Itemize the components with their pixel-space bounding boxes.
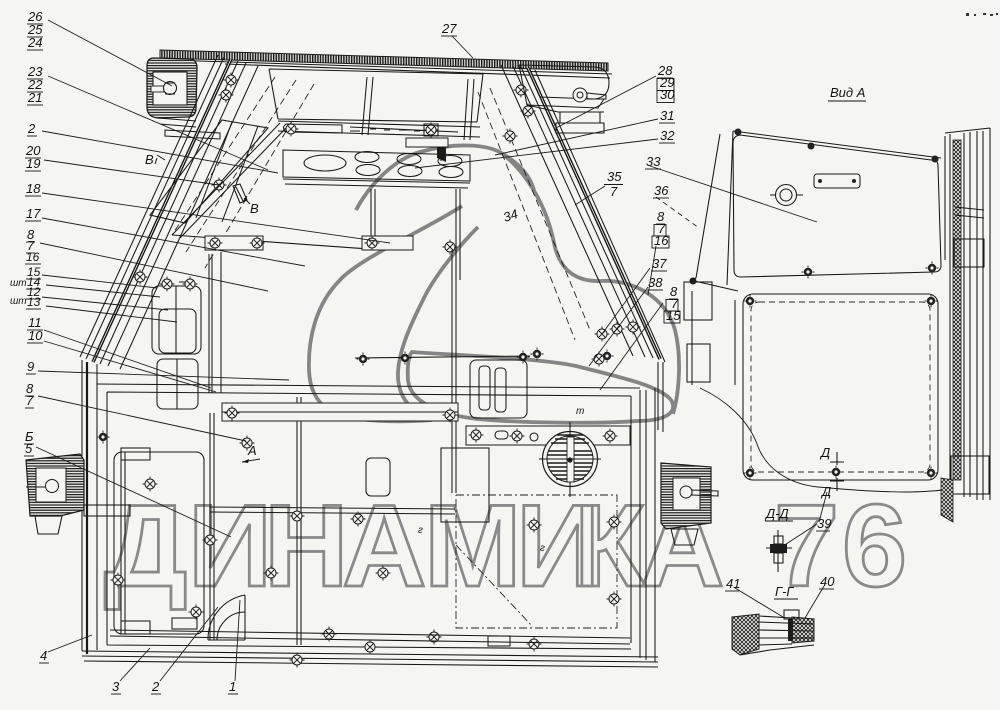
svg-text:К: К: [574, 480, 646, 611]
svg-text:31: 31: [660, 108, 674, 123]
svg-text:40: 40: [820, 574, 835, 589]
svg-text:А: А: [342, 480, 427, 611]
svg-text:13: 13: [27, 295, 41, 309]
svg-text:16: 16: [654, 233, 669, 248]
svg-text:33: 33: [646, 154, 661, 169]
svg-text:7: 7: [26, 393, 34, 408]
svg-text:9: 9: [27, 359, 34, 374]
svg-text:3: 3: [112, 679, 120, 694]
svg-text:32: 32: [660, 128, 675, 143]
svg-text:Д: Д: [820, 484, 831, 499]
svg-text:А: А: [247, 443, 257, 458]
svg-text:В: В: [145, 152, 154, 167]
svg-text:шт: шт: [10, 278, 27, 289]
svg-text:16: 16: [26, 250, 40, 264]
svg-text:39: 39: [817, 516, 831, 531]
svg-text:шт: шт: [10, 296, 27, 307]
svg-text:4: 4: [40, 648, 47, 663]
svg-text:15: 15: [666, 308, 681, 323]
svg-text:38: 38: [648, 275, 663, 290]
svg-text:5: 5: [25, 441, 33, 456]
svg-text:37: 37: [652, 256, 667, 271]
svg-text:17: 17: [26, 206, 41, 221]
svg-text:6: 6: [842, 480, 907, 611]
svg-text:35: 35: [607, 169, 622, 184]
svg-text:М: М: [424, 480, 521, 611]
svg-text:7: 7: [610, 184, 618, 199]
svg-text:30: 30: [660, 87, 675, 102]
svg-text:41: 41: [726, 576, 740, 591]
svg-text:36: 36: [654, 183, 669, 198]
svg-text:В: В: [250, 201, 259, 216]
svg-text:27: 27: [441, 21, 457, 36]
svg-text:г: г: [418, 525, 423, 536]
svg-text:г: г: [540, 543, 545, 554]
svg-text:Г-Г: Г-Г: [775, 584, 794, 599]
svg-text:2: 2: [27, 121, 36, 136]
svg-text:Д-Д: Д-Д: [764, 506, 789, 521]
svg-text:1: 1: [229, 679, 236, 694]
svg-text:2: 2: [151, 679, 160, 694]
svg-text:т: т: [576, 406, 584, 417]
svg-text:Н: Н: [264, 480, 349, 611]
svg-text:18: 18: [26, 181, 41, 196]
svg-text:Д: Д: [104, 480, 187, 611]
svg-text:Д: Д: [819, 445, 830, 460]
svg-text:И: И: [188, 480, 272, 611]
svg-text:Вид А: Вид А: [830, 85, 865, 100]
